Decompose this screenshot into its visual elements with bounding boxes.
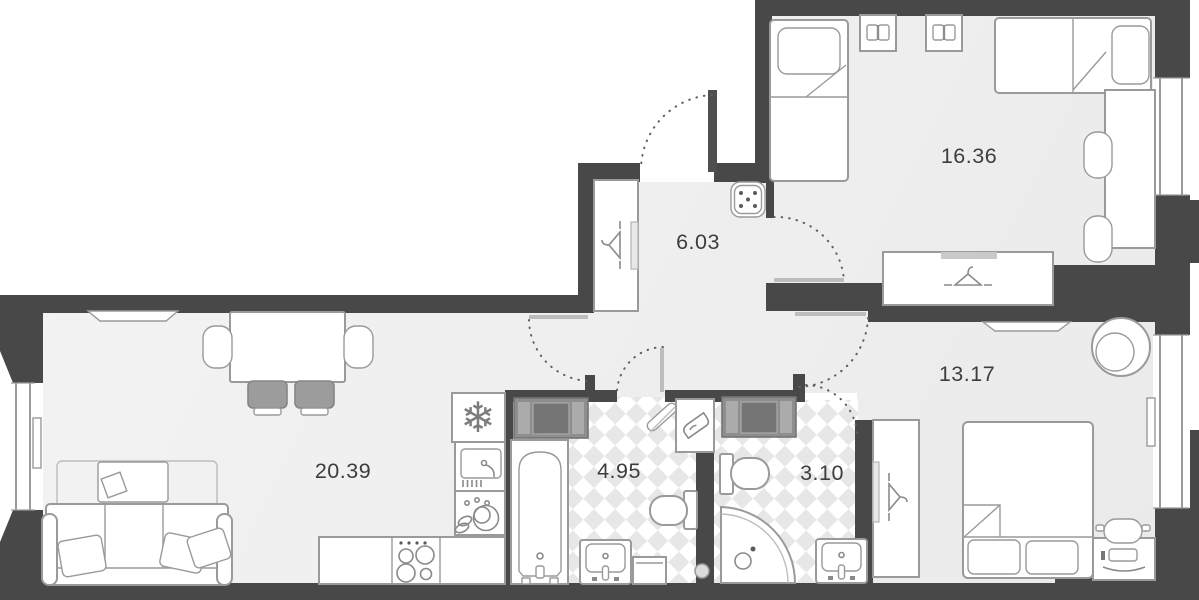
hall-wardrobe	[594, 180, 638, 311]
washing-machine	[514, 398, 588, 438]
toilet	[650, 491, 697, 529]
radiator	[1147, 398, 1155, 446]
electrical-panel	[731, 182, 765, 217]
window-bedroom-2	[1153, 335, 1189, 508]
entrance-door-arc	[641, 95, 712, 168]
floor-plan: ❄	[0, 0, 1199, 600]
dining-chair	[203, 326, 232, 368]
pillow	[968, 540, 1020, 574]
washing-machine	[722, 397, 796, 437]
pillow	[1112, 26, 1149, 84]
desk	[1105, 90, 1155, 248]
window-bedroom-1	[1153, 78, 1189, 195]
bathtub	[511, 440, 568, 584]
iron-box	[676, 399, 714, 452]
floor-hallway-lower	[766, 311, 868, 393]
entrance-door-leaf	[708, 90, 717, 172]
sofa-armrest	[42, 514, 57, 585]
open-book-icon	[867, 25, 889, 40]
room-area-label: 6.03	[676, 230, 720, 254]
vanity-desk	[1093, 538, 1155, 580]
sofa	[42, 504, 232, 585]
kitchen-sink	[455, 442, 505, 491]
wardrobe	[883, 252, 1053, 305]
floor-plan-svg: ❄	[0, 0, 1199, 600]
nightstand	[926, 15, 962, 51]
wardrobe	[873, 420, 919, 577]
room-area-label: 3.10	[800, 461, 844, 485]
dishwasher	[454, 491, 505, 535]
window-living	[11, 383, 35, 510]
room-area-label: 4.95	[597, 459, 641, 483]
dining-chair	[295, 381, 334, 415]
desk-chair	[1084, 132, 1112, 178]
pillow	[778, 28, 840, 74]
room-area-label: 16.36	[941, 144, 997, 168]
laundry-cabinet	[633, 557, 666, 584]
tv-icon	[983, 322, 1070, 331]
five-dots-icon	[746, 198, 750, 202]
open-book-icon	[933, 25, 955, 40]
tv-icon	[88, 311, 178, 321]
dining-table	[230, 312, 345, 382]
pipe-riser	[695, 564, 709, 578]
single-bed	[770, 20, 848, 181]
room-area-label: 20.39	[315, 459, 371, 483]
kitchen-counter	[319, 537, 505, 584]
radiator	[33, 418, 41, 468]
round-armchair	[1092, 318, 1150, 376]
sink	[580, 540, 631, 584]
snowflake-icon: ❄	[460, 394, 495, 441]
double-bed	[963, 422, 1093, 578]
coffee-table	[98, 462, 168, 502]
pillow	[1026, 541, 1078, 574]
toilet	[720, 454, 769, 494]
single-bed	[995, 18, 1151, 93]
dining-chair	[344, 326, 373, 368]
dining-chair	[248, 381, 287, 415]
pillow	[57, 534, 107, 577]
desk-chair	[1084, 216, 1112, 262]
nightstand	[860, 15, 896, 51]
room-area-label: 13.17	[939, 362, 995, 386]
sink	[816, 539, 867, 583]
